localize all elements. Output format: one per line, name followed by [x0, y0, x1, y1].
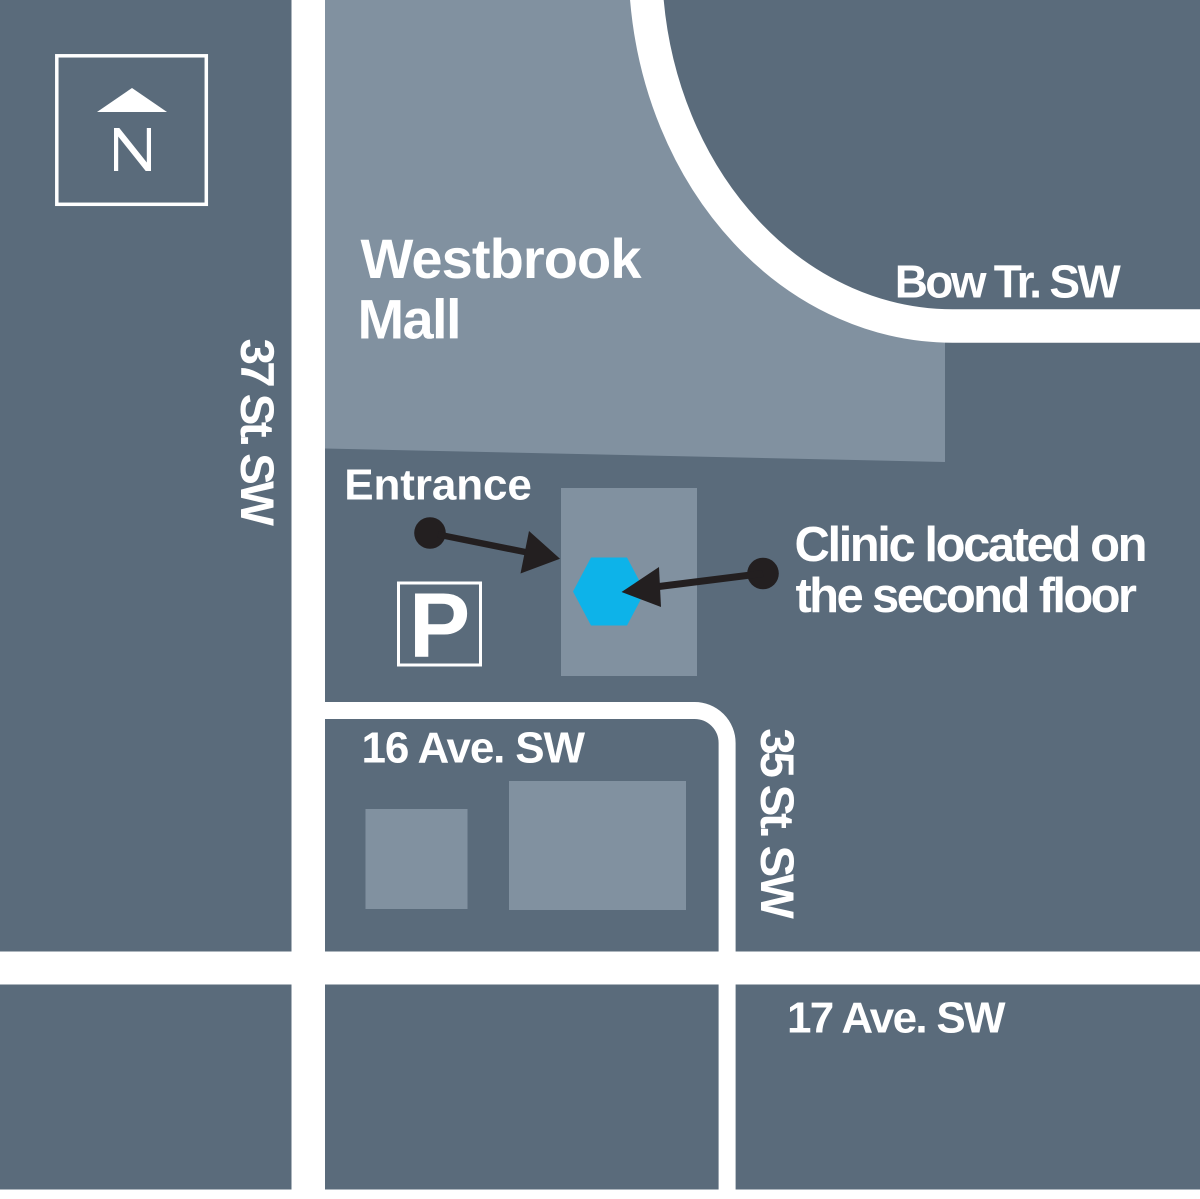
svg-text:37 St. SW: 37 St. SW: [230, 339, 283, 527]
svg-text:Mall: Mall: [358, 287, 462, 350]
svg-text:16 Ave. SW: 16 Ave. SW: [362, 724, 586, 773]
svg-text:the second floor: the second floor: [796, 569, 1138, 623]
svg-text:Clinic located on: Clinic located on: [795, 518, 1148, 572]
svg-text:Bow Tr. SW: Bow Tr. SW: [895, 255, 1122, 307]
svg-text:17 Ave. SW: 17 Ave. SW: [787, 993, 1006, 1042]
svg-text:Entrance: Entrance: [344, 461, 532, 510]
svg-text:P: P: [409, 575, 470, 677]
svg-text:Westbrook: Westbrook: [361, 227, 643, 290]
svg-text:35 St. SW: 35 St. SW: [750, 728, 803, 919]
